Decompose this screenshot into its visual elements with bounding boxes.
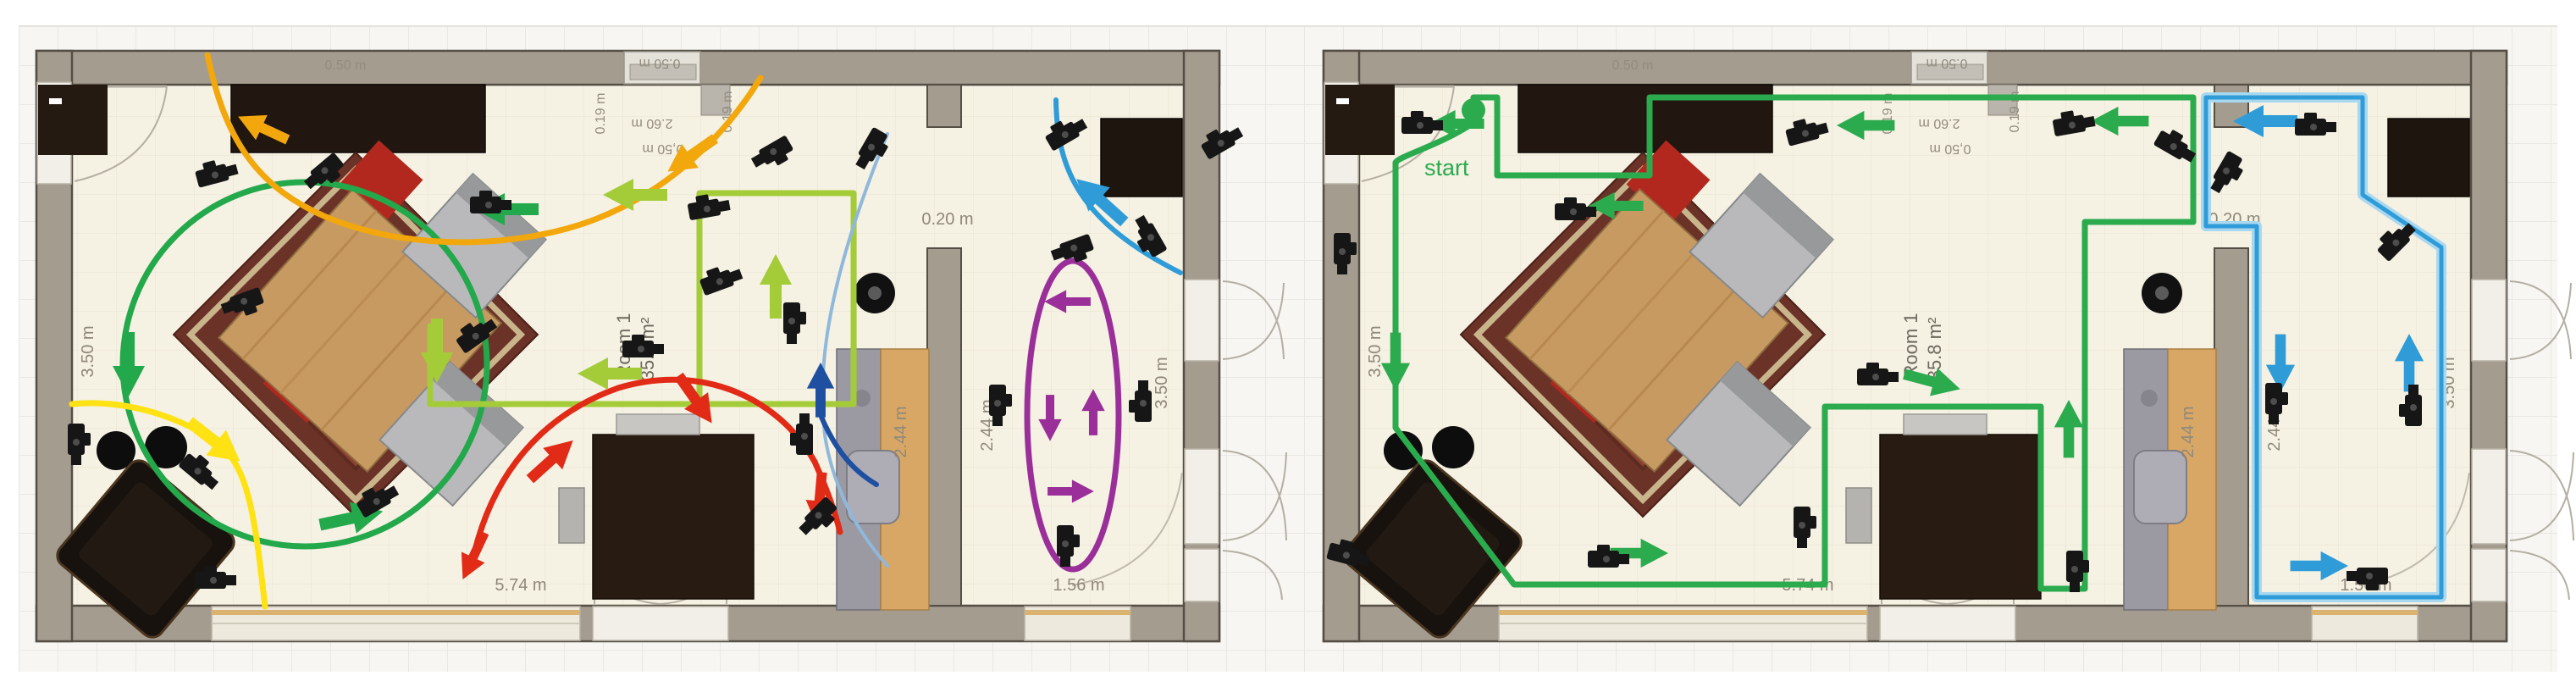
- start-label: start: [1424, 155, 1469, 180]
- floorplan-screenshot: 3.50 m 5.74 m 0.50 m 0.19 m 0.19 m 2.60 …: [0, 0, 2576, 687]
- floorplan-svg: 3.50 m 5.74 m 0.50 m 0.19 m 0.19 m 2.60 …: [0, 0, 2576, 687]
- start-dot-icon: [1462, 98, 1485, 122]
- floor-plan-right: start: [1324, 51, 2573, 642]
- floor-plan-left: [36, 51, 1286, 642]
